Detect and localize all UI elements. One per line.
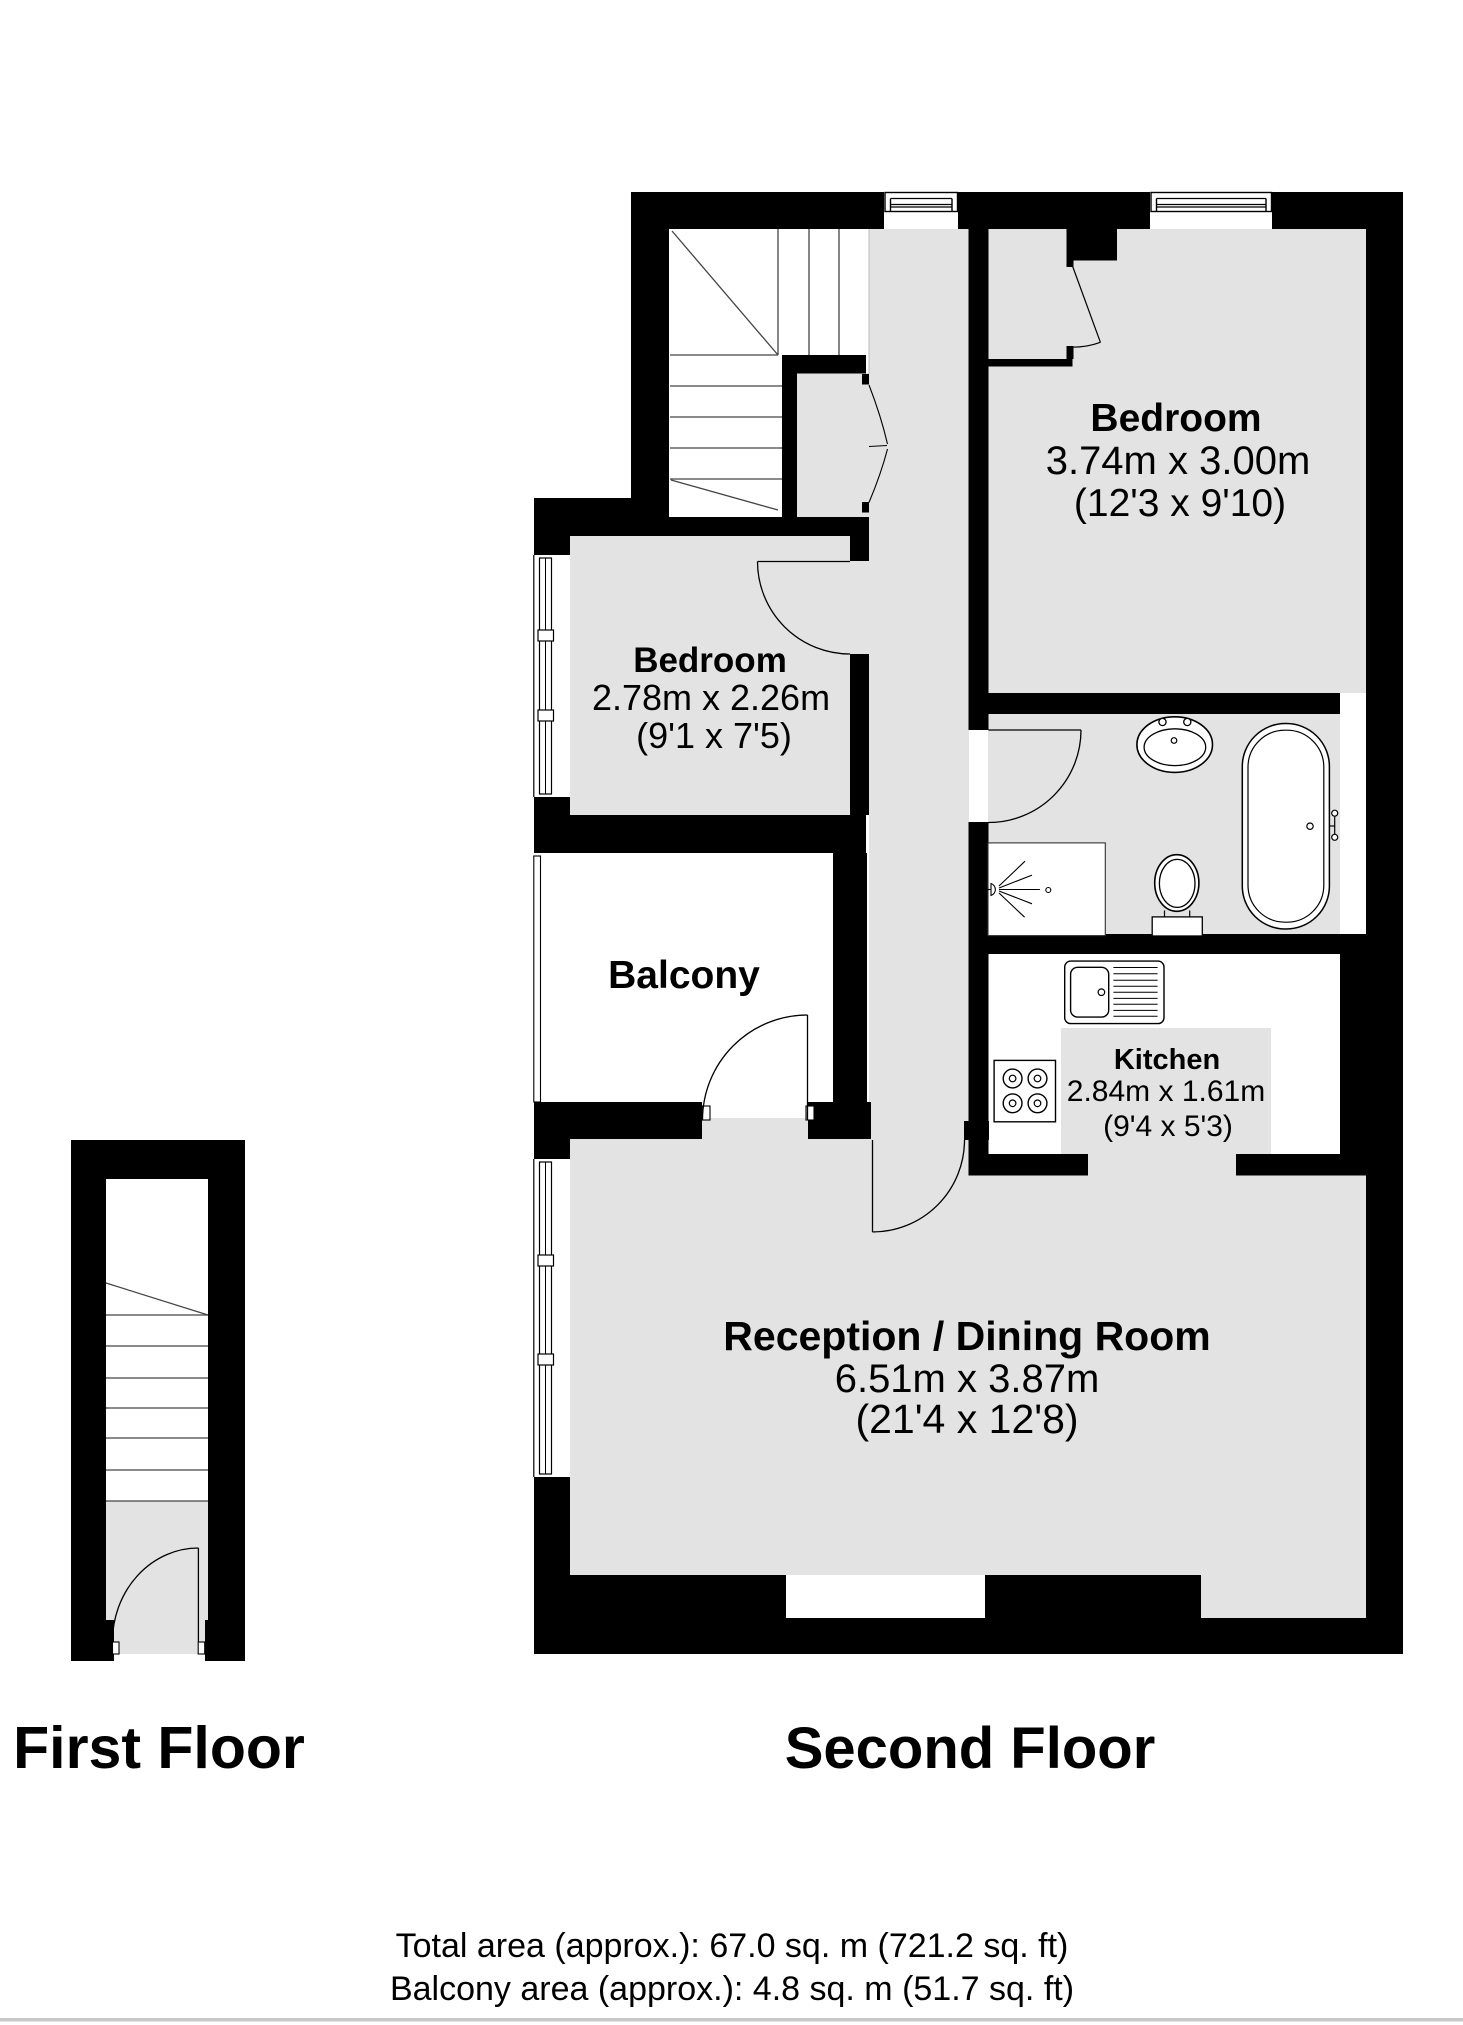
svg-text:(9'1 x 7'5): (9'1 x 7'5) xyxy=(636,715,792,756)
svg-text:First Floor: First Floor xyxy=(13,1715,305,1781)
svg-text:(21'4 x 12'8): (21'4 x 12'8) xyxy=(855,1396,1078,1442)
svg-text:Second Floor: Second Floor xyxy=(785,1716,1156,1781)
svg-text:3.74m x 3.00m: 3.74m x 3.00m xyxy=(1046,439,1311,483)
svg-text:Reception / Dining Room: Reception / Dining Room xyxy=(723,1313,1210,1359)
svg-text:(9'4 x 5'3): (9'4 x 5'3) xyxy=(1103,1110,1233,1143)
svg-text:Bedroom: Bedroom xyxy=(633,641,787,680)
svg-text:Balcony: Balcony xyxy=(608,954,760,997)
svg-text:Bedroom: Bedroom xyxy=(1090,397,1261,440)
svg-text:2.84m x 1.61m: 2.84m x 1.61m xyxy=(1067,1075,1265,1108)
svg-text:6.51m x 3.87m: 6.51m x 3.87m xyxy=(835,1357,1100,1401)
svg-text:Kitchen: Kitchen xyxy=(1114,1044,1220,1076)
svg-text:Total area (approx.): 67.0 sq.: Total area (approx.): 67.0 sq. m (721.2 … xyxy=(396,1927,1069,1965)
svg-text:Balcony area (approx.): 4.8 sq: Balcony area (approx.): 4.8 sq. m (51.7 … xyxy=(390,1970,1074,2008)
svg-text:(12'3 x 9'10): (12'3 x 9'10) xyxy=(1074,482,1286,525)
svg-text:2.78m x 2.26m: 2.78m x 2.26m xyxy=(592,677,830,718)
